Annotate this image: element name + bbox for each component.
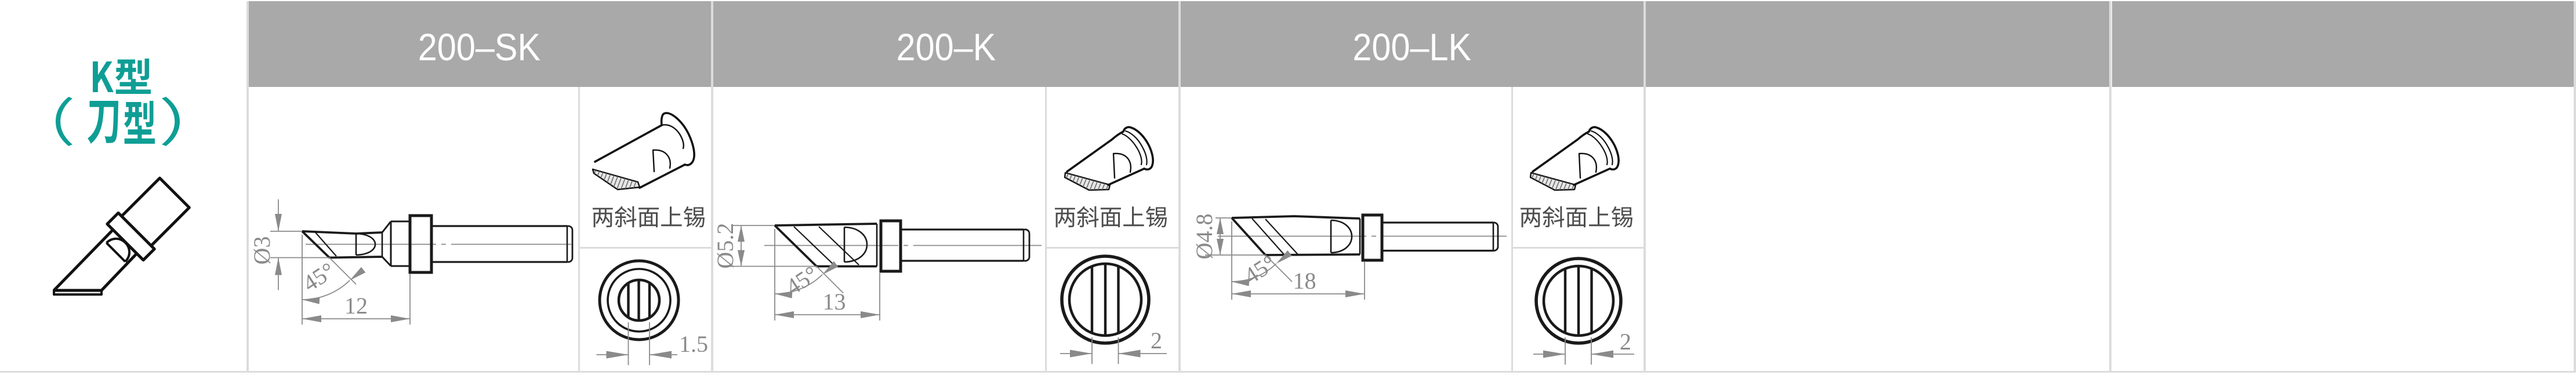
svg-text:Ø5.2: Ø5.2	[713, 223, 738, 269]
svg-text:18: 18	[1293, 268, 1316, 294]
svg-text:2: 2	[1620, 329, 1631, 355]
svg-text:13: 13	[823, 289, 846, 315]
svg-text:2: 2	[1151, 327, 1162, 354]
svg-text:Ø3: Ø3	[249, 236, 275, 265]
svg-text:1.5: 1.5	[679, 331, 708, 357]
svg-text:45°: 45°	[298, 257, 339, 297]
svg-text:Ø4.8: Ø4.8	[1191, 214, 1217, 260]
svg-text:12: 12	[344, 293, 368, 319]
